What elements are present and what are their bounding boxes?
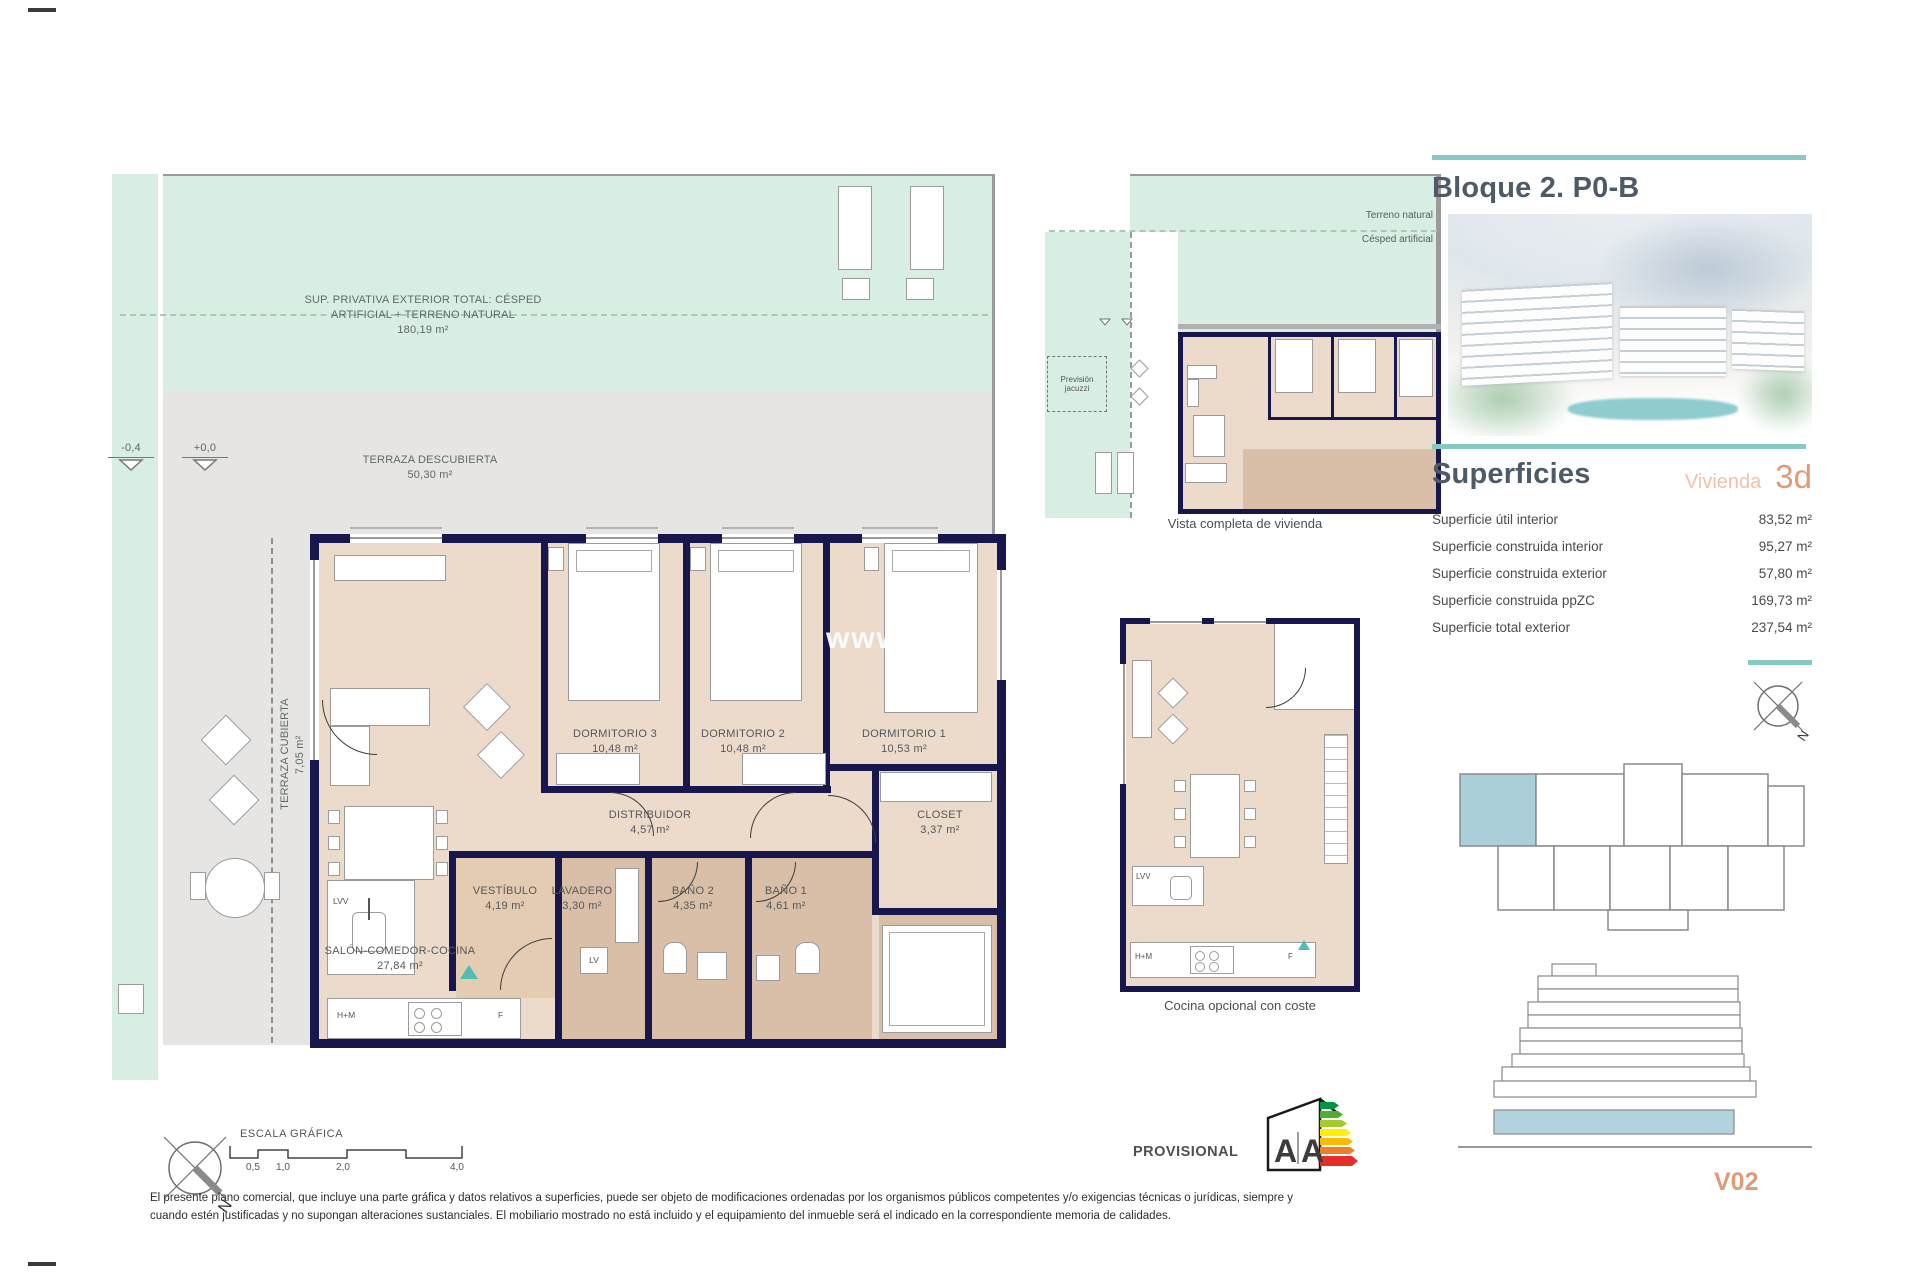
armchair-icon xyxy=(1157,713,1188,744)
bed-icon xyxy=(1399,339,1433,397)
scale-tick: 0,5 xyxy=(246,1162,260,1173)
compass-icon: N xyxy=(1744,676,1828,750)
terraza-cubierta-label: TERRAZA CUBIERTA 7,05 m² xyxy=(278,700,308,810)
garden-label-line2: ARTIFICIAL + TERRENO NATURAL xyxy=(293,308,553,323)
garden-label-line1: SUP. PRIVATIVA EXTERIOR TOTAL: CÉSPED xyxy=(293,293,553,308)
side-table-icon xyxy=(842,278,870,300)
building-block xyxy=(1620,306,1726,376)
disclaimer-line2: cuando estén justificadas y no supongan … xyxy=(150,1210,1350,1222)
overview-plan: Terreno natural Césped artificial Previs… xyxy=(1045,174,1441,518)
terreno-natural-label: Terreno natural xyxy=(1275,210,1433,221)
chair-icon xyxy=(264,872,280,900)
pool xyxy=(1568,398,1738,420)
kitchen-option-caption: Cocina opcional con coste xyxy=(1095,998,1385,1013)
accent-line-short xyxy=(1748,660,1812,665)
chair-icon xyxy=(328,862,340,876)
room-label-dormitorio3: DORMITORIO 310,48 m² xyxy=(545,727,685,757)
lounger-icon xyxy=(910,186,944,270)
disclaimer-line1: El presente plano comercial, que incluye… xyxy=(150,1192,1350,1204)
block-location-plan xyxy=(1458,756,1812,952)
terrace-door-icon xyxy=(310,560,319,760)
shelving-icon xyxy=(1324,734,1348,864)
room-label-dormitorio2: DORMITORIO 210,48 m² xyxy=(673,727,813,757)
nightstand-icon xyxy=(864,547,879,571)
sofa-icon xyxy=(1187,379,1199,407)
washer-box: LV xyxy=(580,947,608,974)
toilet-icon xyxy=(795,942,820,974)
vivienda-label: Vivienda xyxy=(1685,471,1761,494)
chair-icon xyxy=(1174,780,1186,792)
lounger-icon xyxy=(838,186,872,270)
toilet-icon xyxy=(663,942,687,974)
accent-line xyxy=(1432,155,1806,160)
scale-tick: 2,0 xyxy=(336,1162,350,1173)
garden-area-value: 180,19 m² xyxy=(293,323,553,338)
window-icon xyxy=(1120,664,1126,784)
dining-table-icon xyxy=(1193,415,1225,457)
pillow-icon xyxy=(718,550,794,572)
sofa-icon xyxy=(1132,660,1152,738)
chair-icon xyxy=(436,810,448,824)
mini-apartment xyxy=(1178,332,1441,514)
level-marker-high: +0,0 xyxy=(182,441,228,472)
roof-line xyxy=(1178,324,1441,329)
chair-icon xyxy=(1244,836,1256,848)
pillow-icon xyxy=(576,550,652,572)
crop-mark-bottom xyxy=(28,1262,56,1266)
window-icon xyxy=(1150,618,1202,624)
bed-icon xyxy=(710,543,802,701)
chair-icon xyxy=(436,836,448,850)
wall xyxy=(823,764,1006,771)
level-triangle-icon xyxy=(118,458,144,472)
terraza-descubierta-area xyxy=(163,391,995,534)
watermark: www. es xyxy=(826,622,1041,656)
room-label-closet: CLOSET3,37 m² xyxy=(870,808,1010,838)
chair-icon xyxy=(1174,836,1186,848)
island-label: LVV xyxy=(333,896,348,906)
window-sill xyxy=(350,527,442,529)
building-block xyxy=(1462,282,1612,386)
building-elevation xyxy=(1486,962,1794,1142)
compass-north-label: N xyxy=(1794,727,1812,743)
plan-sheet: SUP. PRIVATIVA EXTERIOR TOTAL: CÉSPED AR… xyxy=(0,0,1920,1280)
entrance-arrow-icon xyxy=(1298,940,1310,950)
pillow-icon xyxy=(892,550,970,572)
vivienda-type: 3d xyxy=(1775,458,1812,496)
armchair-icon xyxy=(1157,677,1188,708)
cesped-artificial-label: Césped artificial xyxy=(1275,234,1433,245)
fridge-label: F xyxy=(1288,952,1293,961)
washbasin-icon xyxy=(756,955,780,981)
sink-icon xyxy=(1170,876,1192,900)
kitchen-island-icon xyxy=(1185,463,1227,483)
window-sill xyxy=(586,527,658,529)
wardrobe-icon xyxy=(556,753,640,785)
sideboard-icon xyxy=(334,555,446,581)
bed-icon xyxy=(1338,339,1376,393)
room-label-salon: SALÓN-COMEDOR-COCINA27,84 m² xyxy=(320,944,480,974)
level-triangle-icon xyxy=(192,458,218,472)
garden-label: SUP. PRIVATIVA EXTERIOR TOTAL: CÉSPED AR… xyxy=(293,293,553,338)
island-label: LVV xyxy=(1136,872,1151,881)
terraza-cubierta-boundary xyxy=(271,538,273,1043)
shower-icon xyxy=(882,925,992,1033)
building-block xyxy=(1732,309,1804,372)
jacuzzi-provision-box: Previsión jacuzzi xyxy=(1047,356,1107,412)
room-label-dormitorio1: DORMITORIO 110,53 m² xyxy=(834,727,974,757)
scale-title: ESCALA GRÁFICA xyxy=(240,1128,400,1140)
level-marker-low: -0,4 xyxy=(108,441,154,472)
closet-shelf-icon xyxy=(880,772,992,802)
chair-icon xyxy=(328,836,340,850)
crop-mark-top xyxy=(28,8,56,12)
chair-icon xyxy=(190,872,206,900)
highlighted-unit xyxy=(1460,774,1536,846)
window-icon xyxy=(350,534,442,543)
ground-line xyxy=(1458,1146,1812,1148)
highlighted-floor xyxy=(1494,1110,1734,1134)
window-icon xyxy=(1214,618,1266,624)
window-icon xyxy=(722,534,794,543)
sup-row-value: 169,73 m² xyxy=(1650,593,1812,608)
hob-label: H+M xyxy=(337,1010,355,1020)
vivienda-tag: Vivienda 3d xyxy=(1560,458,1812,496)
stove-icon xyxy=(408,1002,462,1036)
chair-icon xyxy=(1244,780,1256,792)
sup-row-value: 83,52 m² xyxy=(1650,512,1812,527)
provisional-label: PROVISIONAL xyxy=(1133,1144,1238,1160)
window-icon xyxy=(862,534,938,543)
lounger-icon xyxy=(1095,452,1112,494)
round-table-icon xyxy=(205,858,265,918)
wardrobe-icon xyxy=(742,753,826,785)
wall xyxy=(449,851,879,858)
window-sill xyxy=(862,527,938,529)
sup-row-value: 237,54 m² xyxy=(1650,620,1812,635)
chair-icon xyxy=(1244,808,1256,820)
nightstand-icon xyxy=(690,547,706,571)
level-triangle-icon xyxy=(1099,318,1111,326)
sofa-icon xyxy=(1187,365,1217,379)
planter-icon xyxy=(118,984,144,1014)
stove-icon xyxy=(1190,946,1234,974)
fridge-label: F xyxy=(498,1010,503,1020)
wall xyxy=(872,908,1006,915)
lawn-boundary-dashes xyxy=(120,314,988,316)
chair-icon xyxy=(328,810,340,824)
overview-caption: Vista completa de vivienda xyxy=(1095,516,1395,531)
sup-row-value: 95,27 m² xyxy=(1650,539,1812,554)
lawn-strip-left xyxy=(112,174,158,1080)
chair-icon xyxy=(1174,808,1186,820)
scale-tick: 4,0 xyxy=(450,1162,464,1173)
building-illustration xyxy=(1448,214,1812,436)
tap-icon xyxy=(368,898,370,920)
scale-tick: 1,0 xyxy=(276,1162,290,1173)
page-title: Bloque 2. P0-B xyxy=(1432,172,1812,205)
room-label-distribuidor: DISTRIBUIDOR4,57 m² xyxy=(580,808,720,838)
side-table-icon xyxy=(906,278,934,300)
energy-letter-right: A xyxy=(1301,1133,1324,1169)
hob-label: H+M xyxy=(1135,952,1152,961)
room-label-bano1: BAÑO 14,61 m² xyxy=(726,884,846,914)
terraza-descubierta-label: TERRAZA DESCUBIERTA 50,30 m² xyxy=(330,453,530,483)
energy-letter-left: A xyxy=(1274,1133,1297,1169)
level-triangle-icon xyxy=(1121,318,1133,326)
window-icon xyxy=(586,534,658,543)
dining-table-icon xyxy=(344,806,434,880)
sup-row-value: 57,80 m² xyxy=(1650,566,1812,581)
bed-icon xyxy=(1275,339,1313,393)
kitchen-option-plan: LVV H+M F xyxy=(1120,618,1360,992)
dining-table-icon xyxy=(1190,774,1240,858)
lounger-icon xyxy=(1117,452,1134,494)
washbasin-icon xyxy=(697,952,727,980)
window-sill xyxy=(722,527,794,529)
bed-icon xyxy=(568,543,660,701)
nightstand-icon xyxy=(548,547,564,571)
accent-line xyxy=(1432,444,1806,449)
chair-icon xyxy=(436,862,448,876)
energy-rating-icon: A A xyxy=(1258,1086,1358,1178)
version-label: V02 xyxy=(1714,1168,1758,1197)
room-label-lavadero: LAVADERO3,30 m² xyxy=(522,884,642,914)
